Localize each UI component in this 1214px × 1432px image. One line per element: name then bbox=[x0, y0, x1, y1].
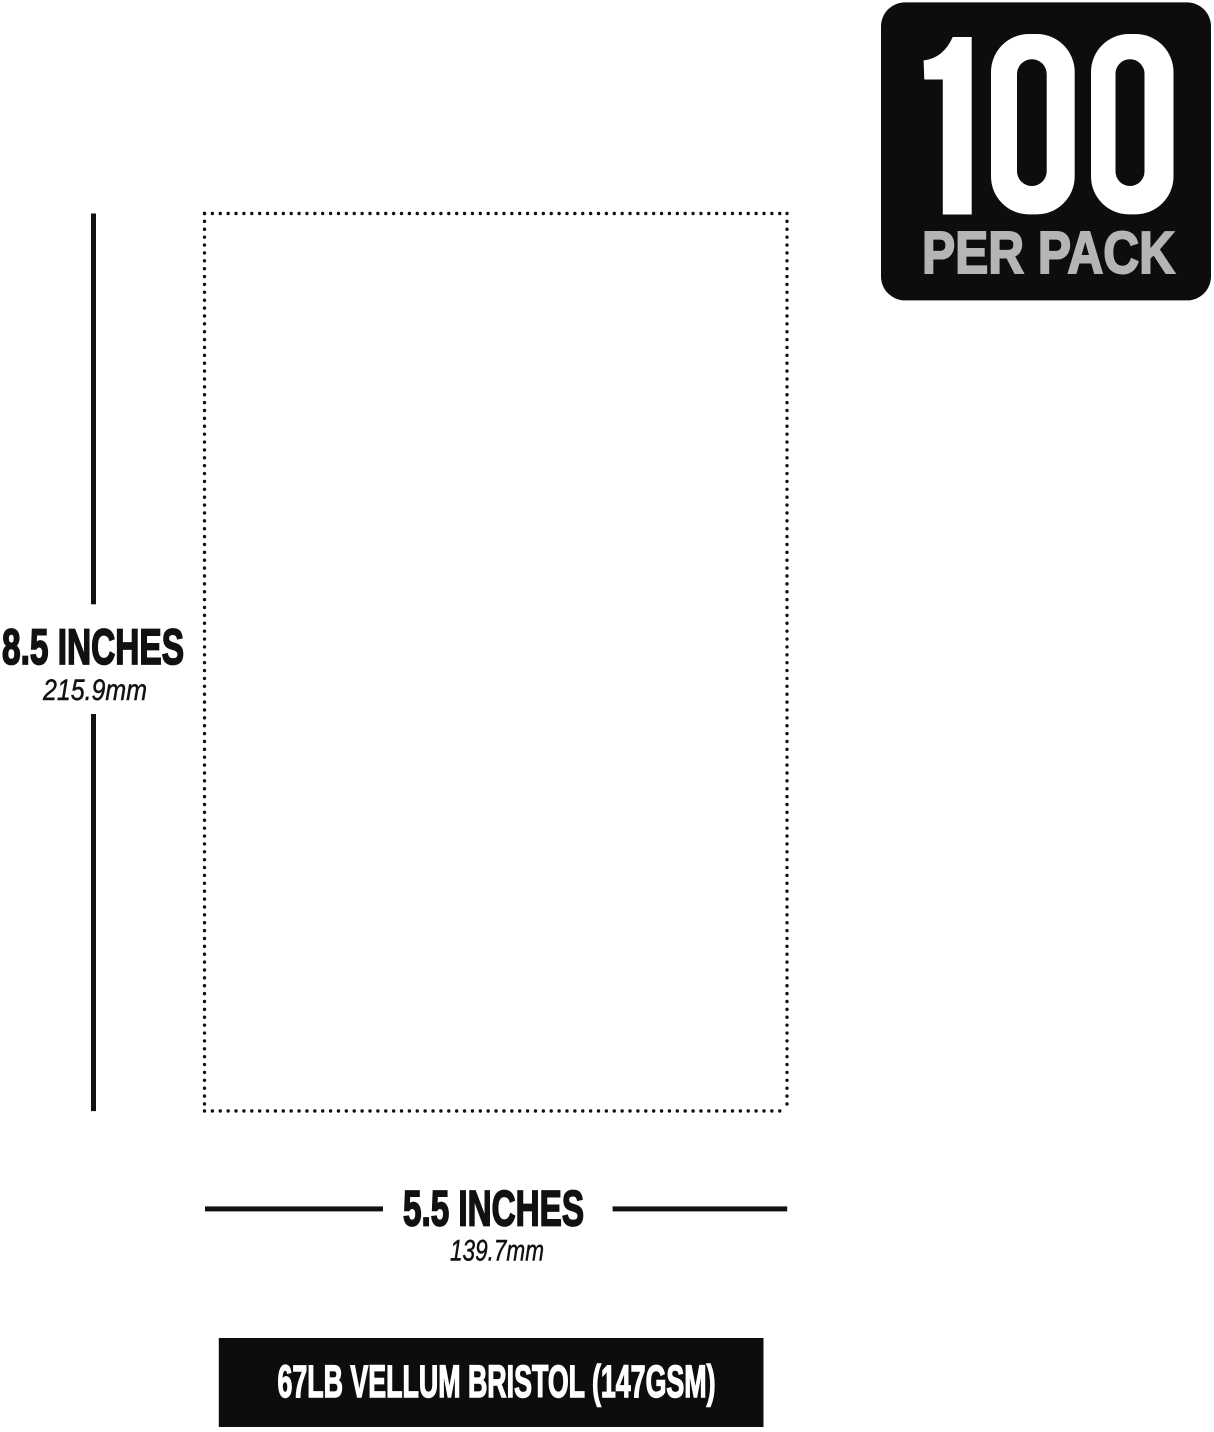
svg-text:PER PACK: PER PACK bbox=[922, 220, 1175, 286]
svg-text:5.5 INCHES: 5.5 INCHES bbox=[403, 1181, 584, 1237]
svg-text:215.9mm: 215.9mm bbox=[42, 674, 147, 707]
svg-text:8.5 INCHES: 8.5 INCHES bbox=[2, 619, 184, 675]
svg-text:139.7mm: 139.7mm bbox=[450, 1235, 544, 1268]
svg-text:67LB VELLUM BRISTOL (147GSM): 67LB VELLUM BRISTOL (147GSM) bbox=[278, 1356, 716, 1407]
